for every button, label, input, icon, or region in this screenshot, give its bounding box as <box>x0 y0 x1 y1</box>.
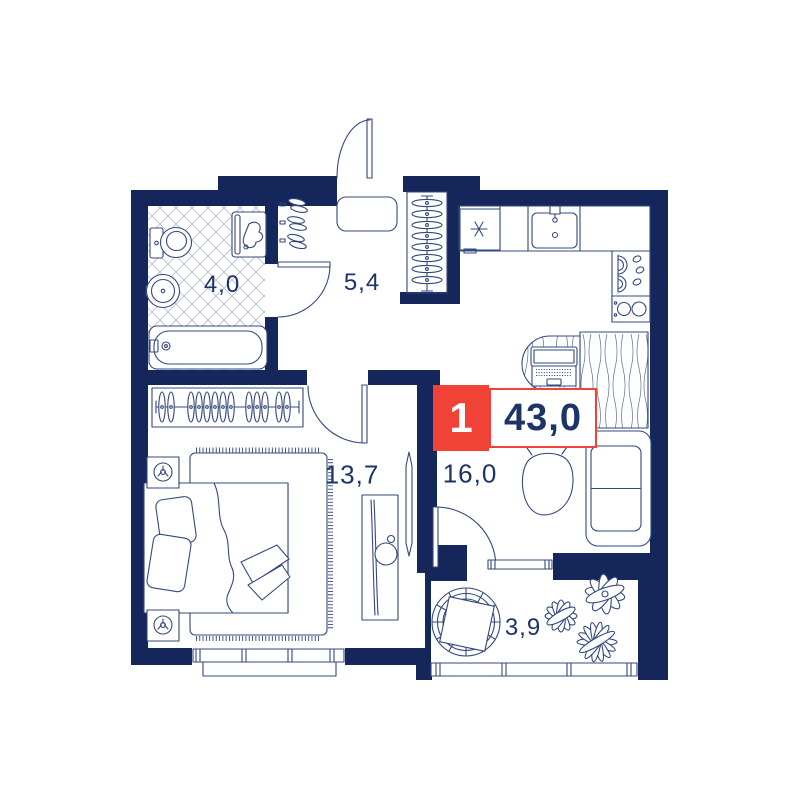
rug-symbol <box>190 450 331 639</box>
wall-segment <box>403 176 447 192</box>
bedroom-window <box>193 649 344 676</box>
bathroom-sink-symbol <box>146 275 180 308</box>
floor-plan: 4,0 5,4 13,7 16,0 3,9 1 43,0 <box>0 0 800 800</box>
stove-symbol <box>612 296 650 322</box>
tv-symbol <box>406 452 412 556</box>
wall-segment <box>650 206 668 553</box>
wall-segment <box>400 292 460 304</box>
balcony-glazing <box>431 663 637 676</box>
wall-segment <box>131 648 192 665</box>
hallway-wardrobe-symbol <box>407 192 447 293</box>
wall-segment <box>416 664 432 680</box>
wall-segment <box>131 370 307 385</box>
wall-segment <box>345 648 428 665</box>
toilet-symbol <box>150 228 192 259</box>
entrance-door-symbol <box>337 119 372 178</box>
room-area-label-bedroom: 13,7 <box>325 460 380 491</box>
entrance-mat-symbol <box>337 197 397 231</box>
armchair-symbol <box>522 447 573 515</box>
wall-segment <box>553 553 668 580</box>
nightstand-symbol <box>147 610 179 641</box>
dish-rack-symbol <box>618 255 645 292</box>
kitchen-sink-symbol <box>532 206 577 248</box>
kitchen-counter-symbol <box>459 206 650 322</box>
sofa-symbol <box>586 431 651 546</box>
wall-segment <box>368 370 440 385</box>
bedroom-closet-symbol <box>152 388 303 427</box>
rooms-count-badge: 1 <box>433 385 489 451</box>
bedroom-door-symbol <box>308 385 367 443</box>
wall-segment <box>480 190 668 206</box>
bed-symbol <box>144 483 290 613</box>
laptop-symbol <box>531 347 577 386</box>
room-area-label-balcony: 3,9 <box>505 614 541 642</box>
plant-symbol <box>577 622 617 663</box>
living-balcony-window <box>488 560 552 569</box>
room-area-label-bathroom: 4,0 <box>204 271 240 299</box>
wall-segment <box>638 580 668 680</box>
nightstand-symbol <box>147 457 179 488</box>
bathtub-symbol <box>149 326 267 369</box>
bedroom-console-symbol <box>362 495 398 620</box>
plant-symbol <box>545 600 577 632</box>
wall-segment <box>265 317 278 370</box>
wall-segment <box>265 206 278 264</box>
fridge-symbol <box>460 209 500 253</box>
wall-segment <box>417 545 467 573</box>
papasan-chair-symbol <box>432 588 500 656</box>
plan-drawing <box>0 0 800 800</box>
wall-segment <box>428 573 467 581</box>
wall-segment <box>131 190 148 665</box>
wall-segment <box>447 192 460 304</box>
wall-segment <box>218 176 337 206</box>
bathroom-door-symbol <box>278 262 330 317</box>
total-area-badge: 43,0 <box>489 388 597 448</box>
washing-machine-symbol <box>232 212 266 257</box>
room-area-label-kitchen-living: 16,0 <box>443 459 498 490</box>
room-area-label-hallway: 5,4 <box>344 269 380 297</box>
